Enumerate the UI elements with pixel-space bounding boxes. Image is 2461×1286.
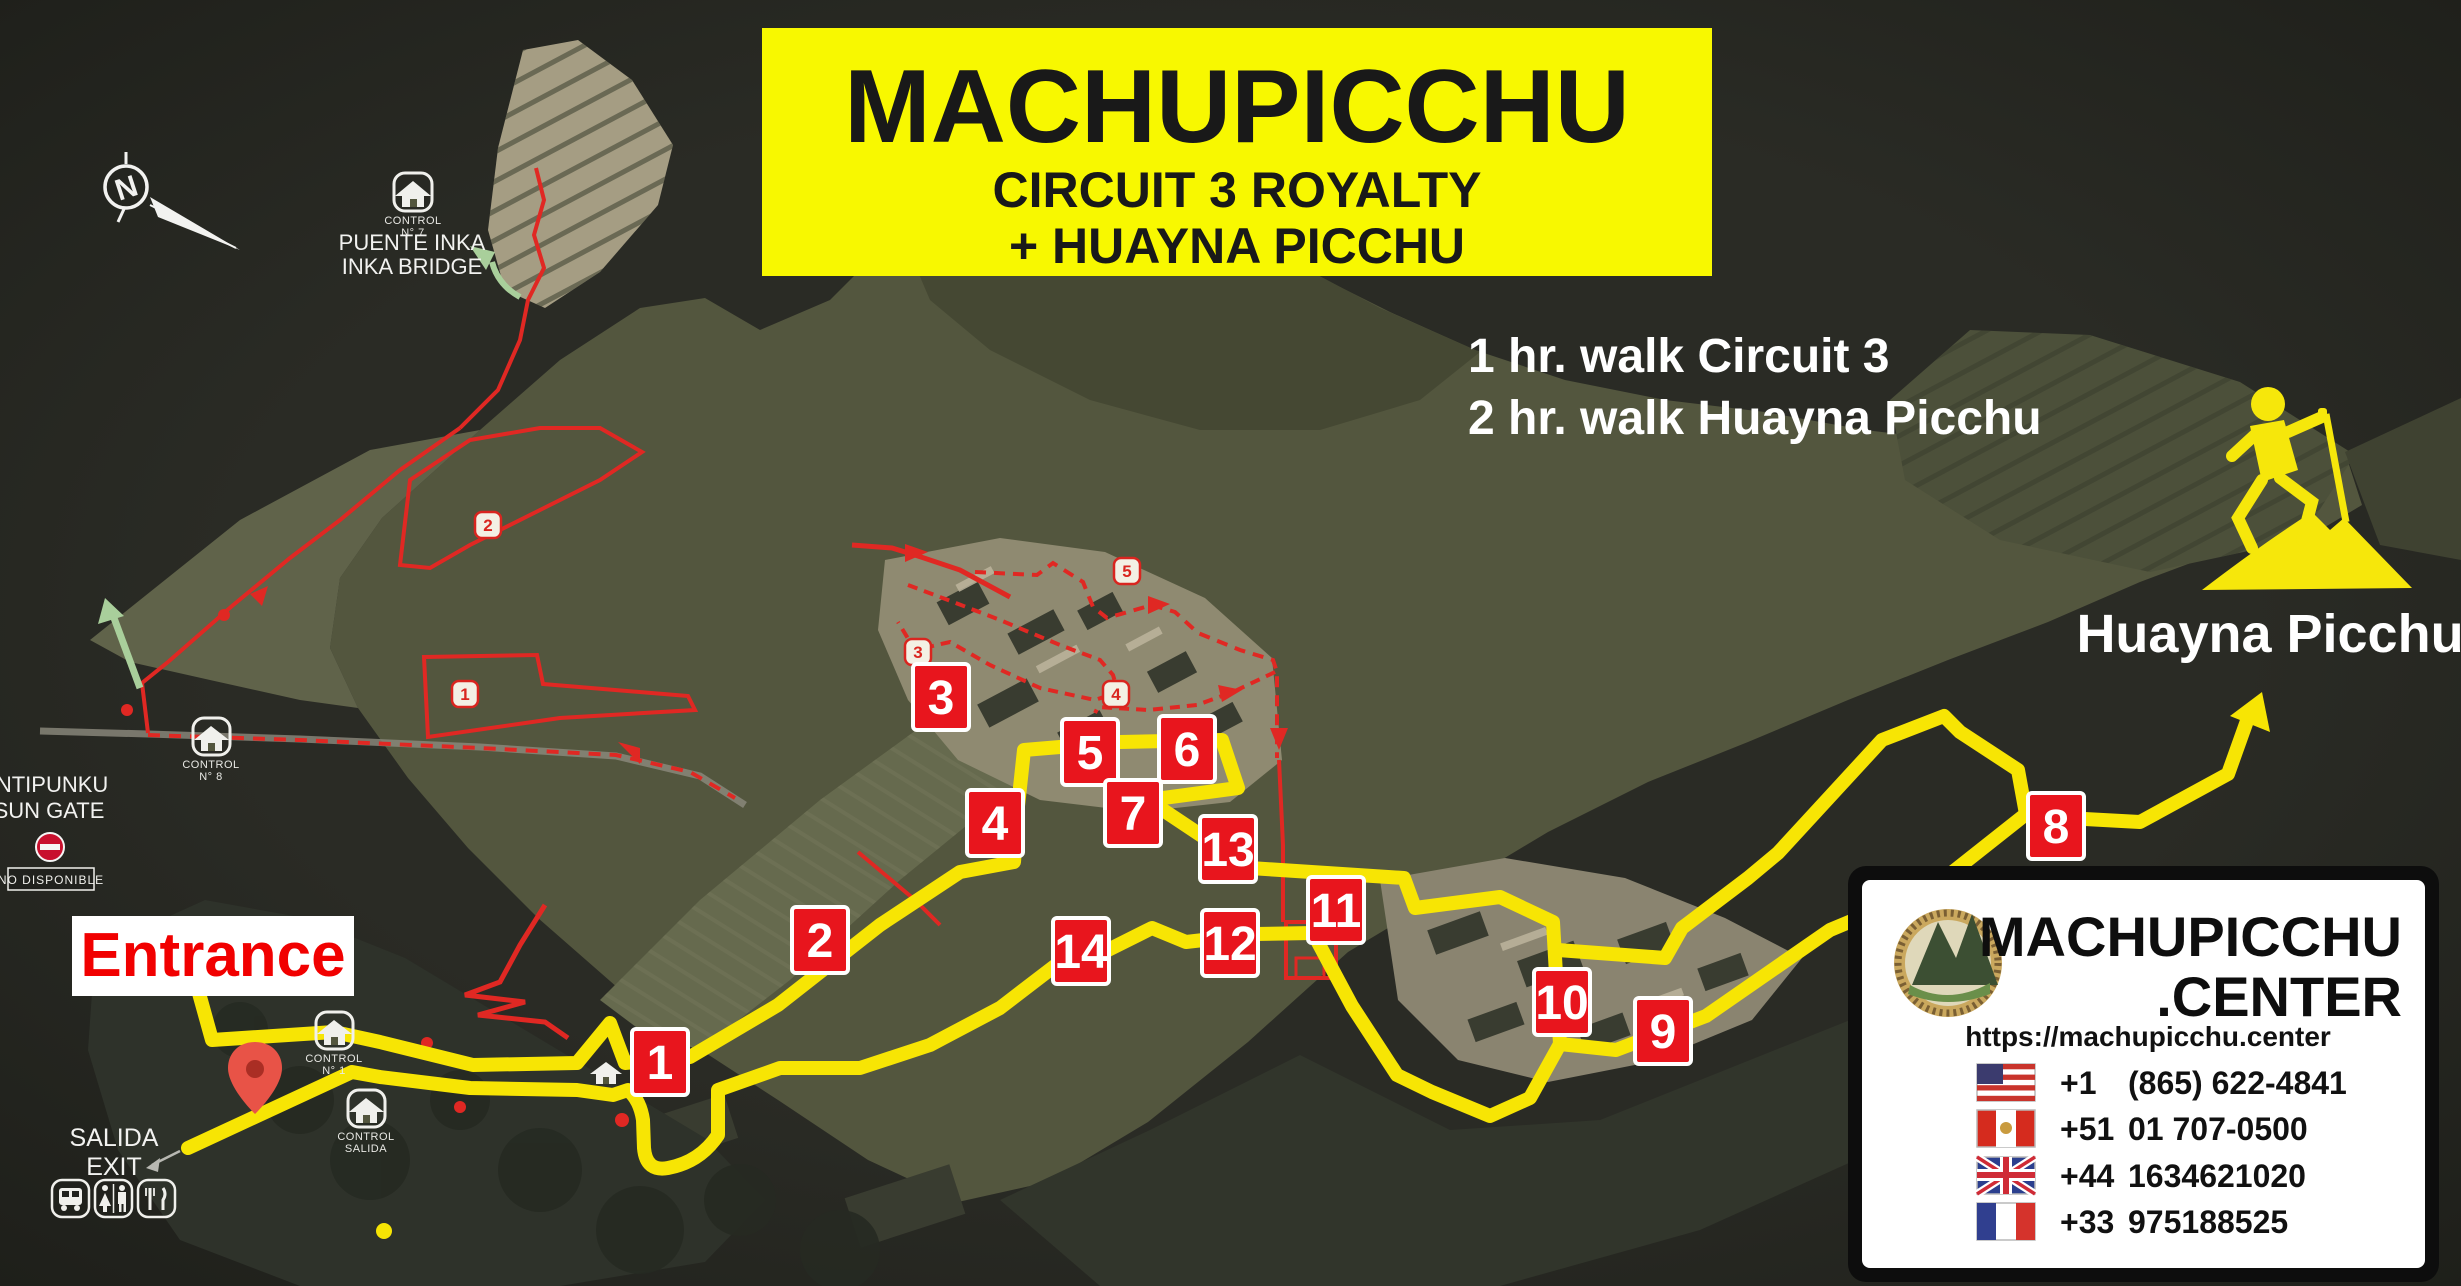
svg-text:5: 5 <box>1122 562 1131 581</box>
brand-line1: MACHUPICCHU <box>1979 905 2402 968</box>
huayna-picchu-label: Huayna Picchu <box>2076 604 2461 664</box>
salida-label: SALIDA <box>70 1124 159 1152</box>
sector-marker-3: 3 <box>905 639 931 665</box>
svg-text:1: 1 <box>647 1037 674 1090</box>
title-line1: MACHUPICCHU <box>844 49 1630 165</box>
sector-marker-1: 1 <box>452 681 478 707</box>
machupicchu-map: N CONTROL N° 7 PUENTE INKA INKA BRIDGE C… <box>0 0 2461 1286</box>
title-line3: + HUAYNA PICCHU <box>1009 218 1465 274</box>
walk-info-line1: 1 hr. walk Circuit 3 <box>1468 330 1890 383</box>
sun-gate-label: SUN GATE <box>0 798 104 823</box>
no-disponible-badge: NO DISPONIBLE <box>0 868 104 890</box>
svg-text:14: 14 <box>1054 926 1108 979</box>
no-entry-icon <box>36 833 64 861</box>
svg-text:SALIDA: SALIDA <box>345 1143 387 1155</box>
svg-text:2: 2 <box>807 915 834 968</box>
pe-flag-icon <box>1977 1110 2035 1147</box>
control-1-label: CONTROL <box>305 1053 362 1065</box>
fr-flag-icon <box>1977 1203 2035 1240</box>
phone-uk-code: +44 <box>2060 1158 2114 1194</box>
control-8-label: CONTROL <box>182 759 239 771</box>
svg-text:7: 7 <box>1120 788 1147 841</box>
svg-text:10: 10 <box>1535 977 1588 1030</box>
route-marker-7: 7 <box>1105 780 1161 846</box>
phone-pe-number[interactable]: 01 707-0500 <box>2128 1111 2308 1147</box>
control-7-label: CONTROL <box>384 215 441 227</box>
route-marker-4: 4 <box>967 790 1023 856</box>
title-line2: CIRCUIT 3 ROYALTY <box>993 162 1482 218</box>
svg-text:3: 3 <box>928 672 955 725</box>
route-marker-9: 9 <box>1635 998 1691 1064</box>
svg-text:4: 4 <box>1111 685 1121 704</box>
phone-us-number[interactable]: (865) 622-4841 <box>2128 1065 2347 1101</box>
title-banner: MACHUPICCHU CIRCUIT 3 ROYALTY + HUAYNA P… <box>762 28 1712 276</box>
intipunku-label: INTIPUNKU <box>0 772 108 797</box>
svg-text:N° 1: N° 1 <box>322 1065 346 1077</box>
entrance-banner: Entrance <box>72 916 354 996</box>
sector-marker-5: 5 <box>1114 558 1140 584</box>
svg-text:N° 8: N° 8 <box>199 771 223 783</box>
route-marker-2: 2 <box>792 907 848 973</box>
svg-text:1: 1 <box>460 685 469 704</box>
route-marker-11: 11 <box>1308 877 1364 943</box>
route-marker-6: 6 <box>1159 716 1215 782</box>
svg-text:2: 2 <box>483 516 492 535</box>
uk-flag-icon <box>1977 1157 2035 1194</box>
walk-info-line2: 2 hr. walk Huayna Picchu <box>1468 392 2042 445</box>
svg-text:6: 6 <box>1174 724 1201 777</box>
route-marker-10: 10 <box>1534 969 1590 1035</box>
route-marker-5: 5 <box>1062 719 1118 785</box>
svg-text:NO DISPONIBLE: NO DISPONIBLE <box>0 873 104 887</box>
svg-text:4: 4 <box>982 798 1009 851</box>
svg-text:12: 12 <box>1203 918 1256 971</box>
inka-bridge-label: INKA BRIDGE <box>342 254 483 279</box>
phone-uk-number[interactable]: 1634621020 <box>2128 1158 2306 1194</box>
us-flag-icon <box>1977 1064 2035 1101</box>
route-marker-12: 12 <box>1202 910 1258 976</box>
phone-fr-code: +33 <box>2060 1204 2114 1240</box>
svg-text:3: 3 <box>913 643 922 662</box>
phone-us-code: +1 <box>2060 1065 2096 1101</box>
svg-text:11: 11 <box>1311 885 1362 938</box>
entrance-label: Entrance <box>80 921 345 990</box>
svg-text:9: 9 <box>1650 1006 1677 1059</box>
route-marker-14: 14 <box>1053 918 1109 984</box>
route-marker-8: 8 <box>2028 793 2084 859</box>
website-link[interactable]: https://machupicchu.center <box>1965 1021 2331 1052</box>
route-marker-1: 1 <box>632 1029 688 1095</box>
svg-text:8: 8 <box>2043 801 2070 854</box>
exit-label: EXIT <box>86 1153 142 1181</box>
phone-pe-code: +51 <box>2060 1111 2114 1147</box>
route-marker-3: 3 <box>913 664 969 730</box>
brand-line2: .CENTER <box>2156 965 2402 1028</box>
info-box: MACHUPICCHU .CENTER https://machupicchu.… <box>1848 866 2439 1282</box>
phone-fr-number[interactable]: 975188525 <box>2128 1204 2288 1240</box>
sector-marker-4: 4 <box>1103 681 1129 707</box>
route-marker-13: 13 <box>1200 816 1256 882</box>
svg-text:5: 5 <box>1077 727 1104 780</box>
puente-inka-label: PUENTE INKA <box>339 230 486 255</box>
sector-marker-2: 2 <box>475 512 501 538</box>
svg-text:13: 13 <box>1201 824 1254 877</box>
control-salida-label: CONTROL <box>337 1131 394 1143</box>
